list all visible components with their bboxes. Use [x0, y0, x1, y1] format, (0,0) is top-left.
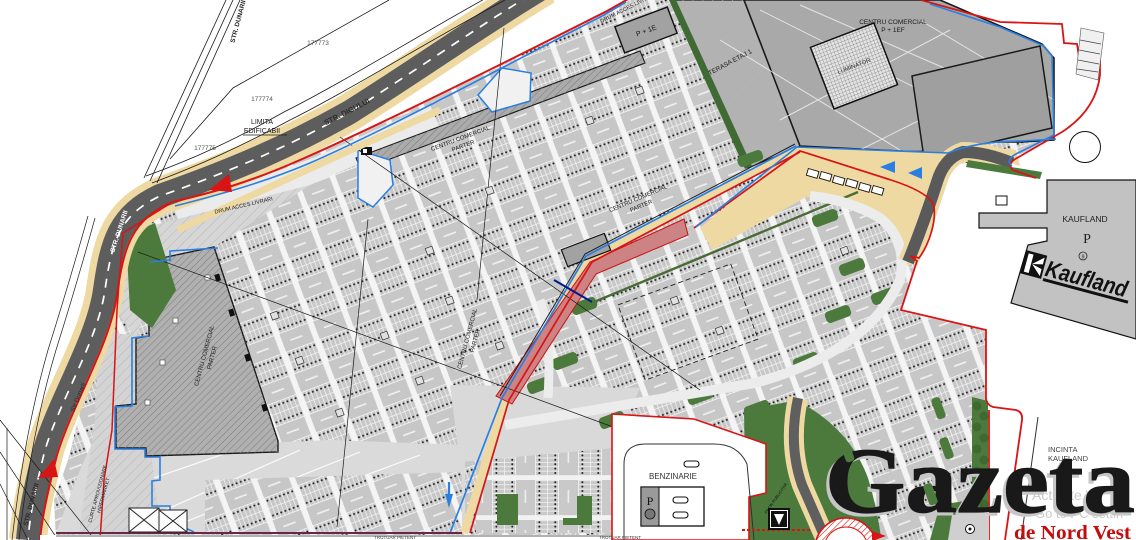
- svg-text:LIMITA: LIMITA: [251, 119, 273, 126]
- svg-text:BENZINARIE: BENZINARIE: [649, 472, 697, 481]
- svg-text:177773: 177773: [307, 40, 329, 47]
- svg-text:9: 9: [1081, 255, 1084, 261]
- svg-text:177774: 177774: [251, 96, 273, 103]
- svg-text:177775: 177775: [194, 145, 216, 152]
- svg-text:TROTUAR PIETENT: TROTUAR PIETENT: [374, 535, 416, 540]
- svg-text:EDIFICABII: EDIFICABII: [244, 128, 280, 135]
- svg-text:P: P: [647, 494, 654, 508]
- svg-text:TROTUAR PIETENT: TROTUAR PIETENT: [599, 535, 641, 540]
- svg-text:P: P: [1083, 232, 1091, 247]
- svg-text:CENTRU COMERCIAL: CENTRU COMERCIAL: [859, 19, 927, 26]
- svg-text:de Nord Vest: de Nord Vest: [1014, 522, 1131, 540]
- svg-text:P + 1EF: P + 1EF: [881, 27, 905, 34]
- svg-text:KAUFLAND: KAUFLAND: [1062, 214, 1107, 224]
